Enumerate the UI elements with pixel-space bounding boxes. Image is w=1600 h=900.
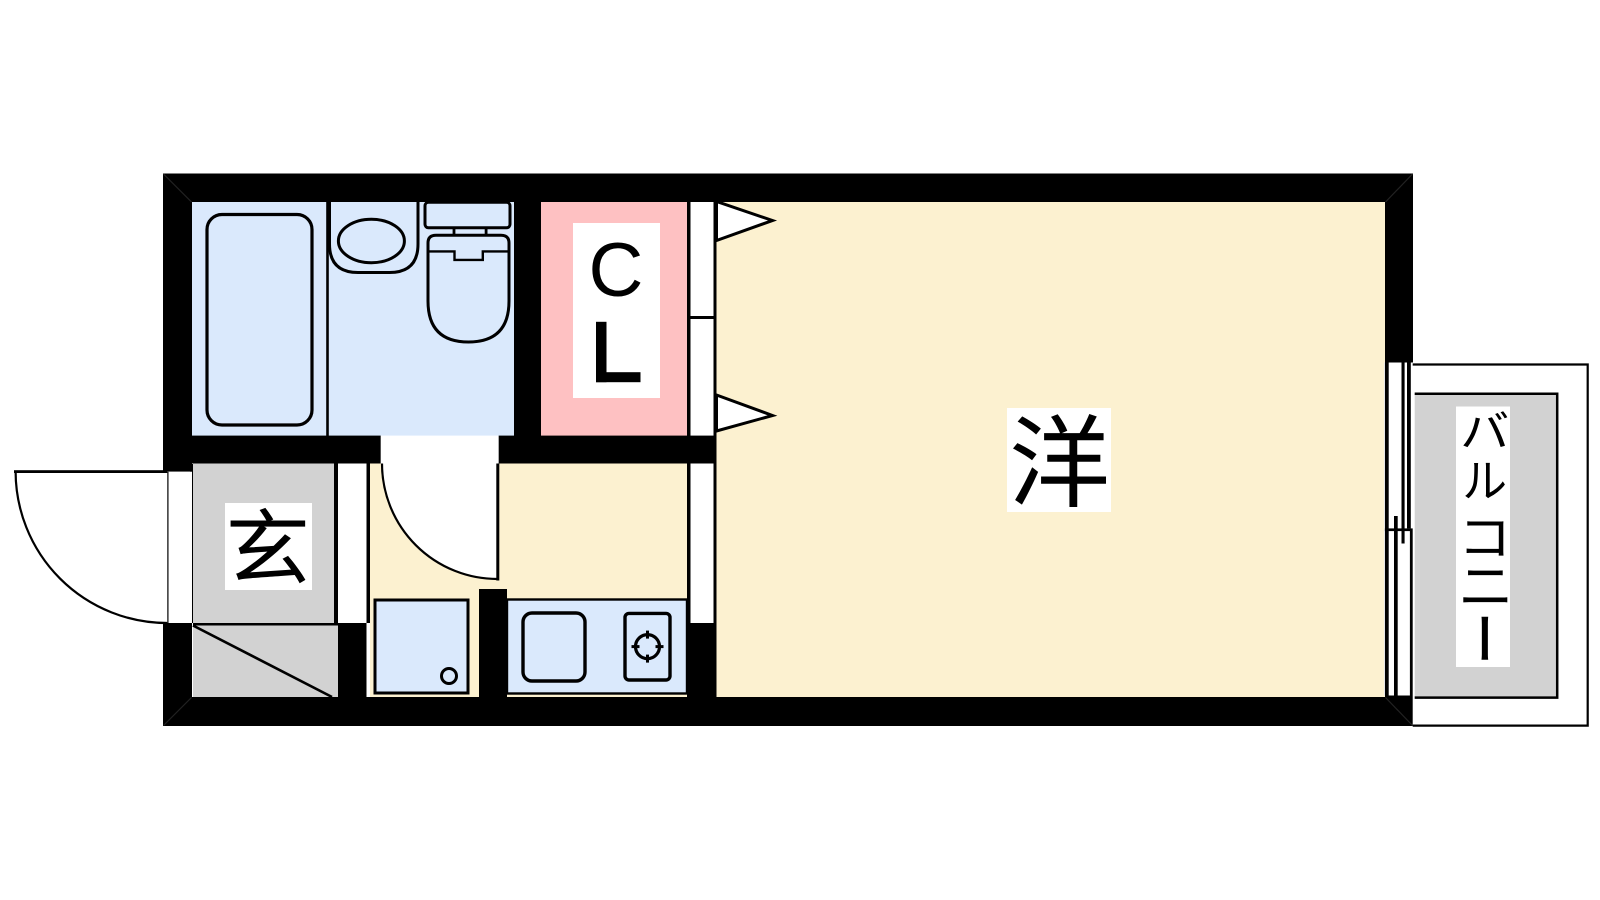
svg-text:C: C — [589, 228, 644, 313]
